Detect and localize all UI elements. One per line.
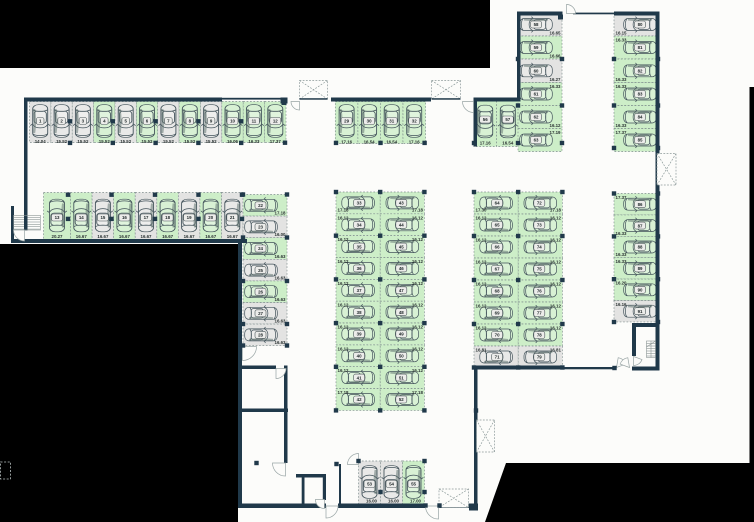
svg-text:10: 10 (230, 119, 235, 124)
svg-text:17.30: 17.30 (476, 208, 488, 213)
svg-text:16.12: 16.12 (338, 215, 350, 220)
svg-text:71: 71 (495, 355, 500, 360)
svg-text:22: 22 (258, 203, 263, 208)
svg-text:63: 63 (534, 138, 539, 143)
svg-text:15.52: 15.52 (77, 139, 89, 144)
svg-text:34: 34 (357, 223, 362, 228)
svg-text:82: 82 (638, 69, 643, 74)
svg-text:84: 84 (638, 115, 643, 120)
svg-text:37: 37 (357, 288, 362, 293)
svg-text:28: 28 (258, 333, 263, 338)
svg-text:70: 70 (495, 333, 500, 338)
svg-text:16.12: 16.12 (338, 368, 350, 373)
svg-text:44: 44 (399, 223, 404, 228)
svg-text:36: 36 (357, 266, 362, 271)
svg-text:65: 65 (495, 223, 500, 228)
svg-text:26: 26 (258, 289, 263, 294)
svg-text:61: 61 (534, 92, 539, 97)
svg-text:16.12: 16.12 (412, 325, 424, 330)
svg-text:29: 29 (344, 119, 349, 124)
svg-text:14: 14 (79, 215, 84, 220)
svg-text:16.15: 16.15 (616, 31, 628, 36)
svg-text:16.54: 16.54 (386, 139, 398, 144)
svg-text:16.54: 16.54 (502, 140, 514, 145)
svg-text:16.12: 16.12 (338, 259, 350, 264)
svg-text:16.63: 16.63 (275, 254, 287, 259)
svg-text:59: 59 (534, 45, 539, 50)
svg-text:16.12: 16.12 (412, 368, 424, 373)
svg-text:89: 89 (638, 266, 643, 271)
svg-text:16.12: 16.12 (412, 346, 424, 351)
svg-text:16.54: 16.54 (364, 139, 376, 144)
svg-text:23: 23 (258, 225, 263, 230)
svg-text:88: 88 (638, 245, 643, 250)
svg-text:72: 72 (537, 201, 542, 206)
svg-text:17.18: 17.18 (338, 390, 350, 395)
svg-text:43: 43 (399, 201, 404, 206)
svg-text:15.52: 15.52 (120, 139, 132, 144)
svg-text:17.18: 17.18 (338, 207, 350, 212)
svg-text:16.16: 16.16 (616, 302, 628, 307)
svg-text:16.12: 16.12 (412, 259, 424, 264)
svg-text:30: 30 (367, 119, 372, 124)
svg-text:17.37: 17.37 (270, 139, 282, 144)
svg-text:12: 12 (273, 119, 278, 124)
svg-text:17.16: 17.16 (341, 139, 353, 144)
svg-text:75: 75 (537, 267, 542, 272)
svg-text:40: 40 (357, 354, 362, 359)
svg-text:16.12: 16.12 (550, 282, 562, 287)
svg-text:21: 21 (230, 215, 235, 220)
svg-text:64: 64 (495, 201, 500, 206)
svg-text:20.27: 20.27 (52, 234, 64, 239)
svg-text:16.12: 16.12 (338, 281, 350, 286)
svg-text:16.33: 16.33 (616, 231, 628, 236)
svg-text:74: 74 (537, 245, 542, 250)
svg-text:16.12: 16.12 (476, 304, 488, 309)
svg-text:17.16: 17.16 (409, 139, 421, 144)
svg-text:47: 47 (399, 288, 404, 293)
svg-text:16.12: 16.12 (476, 326, 488, 331)
svg-text:16.33: 16.33 (616, 38, 628, 43)
svg-text:17.18: 17.18 (275, 211, 287, 216)
svg-text:16.27: 16.27 (550, 77, 562, 82)
svg-text:16.12: 16.12 (412, 281, 424, 286)
svg-text:17.18: 17.18 (412, 207, 424, 212)
svg-text:58: 58 (534, 22, 539, 27)
svg-text:13: 13 (55, 215, 60, 220)
svg-text:16.12: 16.12 (550, 238, 562, 243)
svg-text:67: 67 (495, 267, 500, 272)
svg-text:15.52: 15.52 (206, 139, 218, 144)
svg-text:16.33: 16.33 (616, 123, 628, 128)
svg-text:11: 11 (252, 119, 257, 124)
svg-text:16.12: 16.12 (476, 282, 488, 287)
svg-text:39: 39 (357, 332, 362, 337)
svg-text:25: 25 (258, 268, 263, 273)
svg-text:16.33: 16.33 (248, 139, 260, 144)
svg-text:16.12: 16.12 (476, 216, 488, 221)
svg-text:16.33: 16.33 (616, 77, 628, 82)
svg-text:16.33: 16.33 (616, 252, 628, 257)
svg-text:86: 86 (638, 202, 643, 207)
svg-text:16.65: 16.65 (550, 31, 562, 36)
svg-text:16.67: 16.67 (141, 234, 153, 239)
svg-text:17.19: 17.19 (550, 130, 562, 135)
svg-text:53: 53 (367, 482, 372, 487)
svg-text:17.18: 17.18 (550, 208, 562, 213)
svg-text:16.81: 16.81 (550, 348, 562, 353)
svg-text:76: 76 (537, 289, 542, 294)
svg-text:16.06: 16.06 (227, 139, 239, 144)
svg-text:16.12: 16.12 (412, 303, 424, 308)
svg-text:90: 90 (638, 288, 643, 293)
svg-text:42: 42 (357, 397, 362, 402)
svg-text:16.67: 16.67 (76, 234, 88, 239)
svg-text:15.52: 15.52 (163, 139, 175, 144)
svg-text:16.00: 16.00 (388, 499, 400, 504)
svg-text:35: 35 (357, 244, 362, 249)
svg-text:16.00: 16.00 (366, 499, 378, 504)
svg-text:60: 60 (534, 69, 539, 74)
svg-text:24: 24 (258, 246, 263, 251)
svg-text:56: 56 (483, 117, 488, 122)
svg-text:73: 73 (537, 223, 542, 228)
svg-text:16.12: 16.12 (412, 215, 424, 220)
svg-text:16.12: 16.12 (550, 216, 562, 221)
svg-text:16.67: 16.67 (97, 234, 109, 239)
svg-text:57: 57 (505, 117, 510, 122)
svg-text:17: 17 (144, 215, 149, 220)
svg-text:85: 85 (638, 138, 643, 143)
svg-text:51: 51 (399, 375, 404, 380)
svg-text:79: 79 (537, 355, 542, 360)
svg-text:16.12: 16.12 (550, 260, 562, 265)
svg-text:55: 55 (411, 482, 416, 487)
svg-text:16.67: 16.67 (184, 234, 196, 239)
svg-text:87: 87 (638, 223, 643, 228)
svg-text:38: 38 (357, 310, 362, 315)
svg-text:80: 80 (638, 22, 643, 27)
svg-text:81: 81 (638, 45, 643, 50)
svg-text:16.33: 16.33 (616, 259, 628, 264)
svg-text:16.63: 16.63 (275, 297, 287, 302)
svg-text:77: 77 (537, 311, 542, 316)
svg-text:69: 69 (495, 311, 500, 316)
svg-text:16.63: 16.63 (275, 275, 287, 280)
svg-text:17.16: 17.16 (480, 140, 492, 145)
svg-text:17.37: 17.37 (616, 195, 628, 200)
svg-text:16.20: 16.20 (616, 281, 628, 286)
svg-text:16.12: 16.12 (338, 303, 350, 308)
svg-text:16.12: 16.12 (338, 237, 350, 242)
svg-text:16.63: 16.63 (275, 319, 287, 324)
svg-text:17.00: 17.00 (410, 499, 422, 504)
svg-text:16.33: 16.33 (616, 84, 628, 89)
svg-text:31: 31 (389, 119, 394, 124)
svg-text:16.12: 16.12 (338, 346, 350, 351)
svg-text:62: 62 (534, 115, 539, 120)
svg-text:15.52: 15.52 (184, 139, 196, 144)
svg-text:16.12: 16.12 (338, 325, 350, 330)
svg-text:16.66: 16.66 (550, 54, 562, 59)
svg-text:16.12: 16.12 (550, 326, 562, 331)
svg-text:17.18: 17.18 (412, 390, 424, 395)
svg-text:16.12: 16.12 (550, 304, 562, 309)
svg-text:16.12: 16.12 (476, 260, 488, 265)
svg-text:54: 54 (389, 482, 394, 487)
svg-text:17.37: 17.37 (616, 130, 628, 135)
svg-text:27: 27 (258, 311, 263, 316)
svg-text:32: 32 (412, 119, 417, 124)
svg-text:91: 91 (638, 309, 643, 314)
svg-text:19: 19 (187, 215, 192, 220)
svg-text:49: 49 (399, 332, 404, 337)
svg-text:48: 48 (399, 310, 404, 315)
svg-text:14.04: 14.04 (35, 139, 47, 144)
svg-text:16.67: 16.67 (205, 234, 217, 239)
svg-text:78: 78 (537, 333, 542, 338)
svg-text:15: 15 (100, 215, 105, 220)
svg-text:16.81: 16.81 (476, 348, 488, 353)
svg-text:18: 18 (165, 215, 170, 220)
svg-text:50: 50 (399, 354, 404, 359)
svg-text:16: 16 (122, 215, 127, 220)
svg-text:15.52: 15.52 (99, 139, 111, 144)
svg-text:16.12: 16.12 (412, 237, 424, 242)
svg-text:15.52: 15.52 (142, 139, 154, 144)
svg-text:16.67: 16.67 (227, 234, 239, 239)
svg-text:52: 52 (399, 397, 404, 402)
svg-text:68: 68 (495, 289, 500, 294)
svg-text:16.00: 16.00 (275, 232, 287, 237)
svg-text:46: 46 (399, 266, 404, 271)
svg-text:33: 33 (357, 201, 362, 206)
svg-text:16.12: 16.12 (550, 123, 562, 128)
svg-text:16.67: 16.67 (119, 234, 131, 239)
svg-text:16.12: 16.12 (476, 238, 488, 243)
svg-text:41: 41 (357, 375, 362, 380)
svg-text:83: 83 (638, 92, 643, 97)
svg-text:45: 45 (399, 244, 404, 249)
svg-text:15.52: 15.52 (56, 139, 68, 144)
svg-text:20: 20 (208, 215, 213, 220)
svg-text:66: 66 (495, 245, 500, 250)
svg-text:16.67: 16.67 (162, 234, 174, 239)
svg-text:16.63: 16.63 (275, 340, 287, 345)
svg-text:16.33: 16.33 (550, 84, 562, 89)
